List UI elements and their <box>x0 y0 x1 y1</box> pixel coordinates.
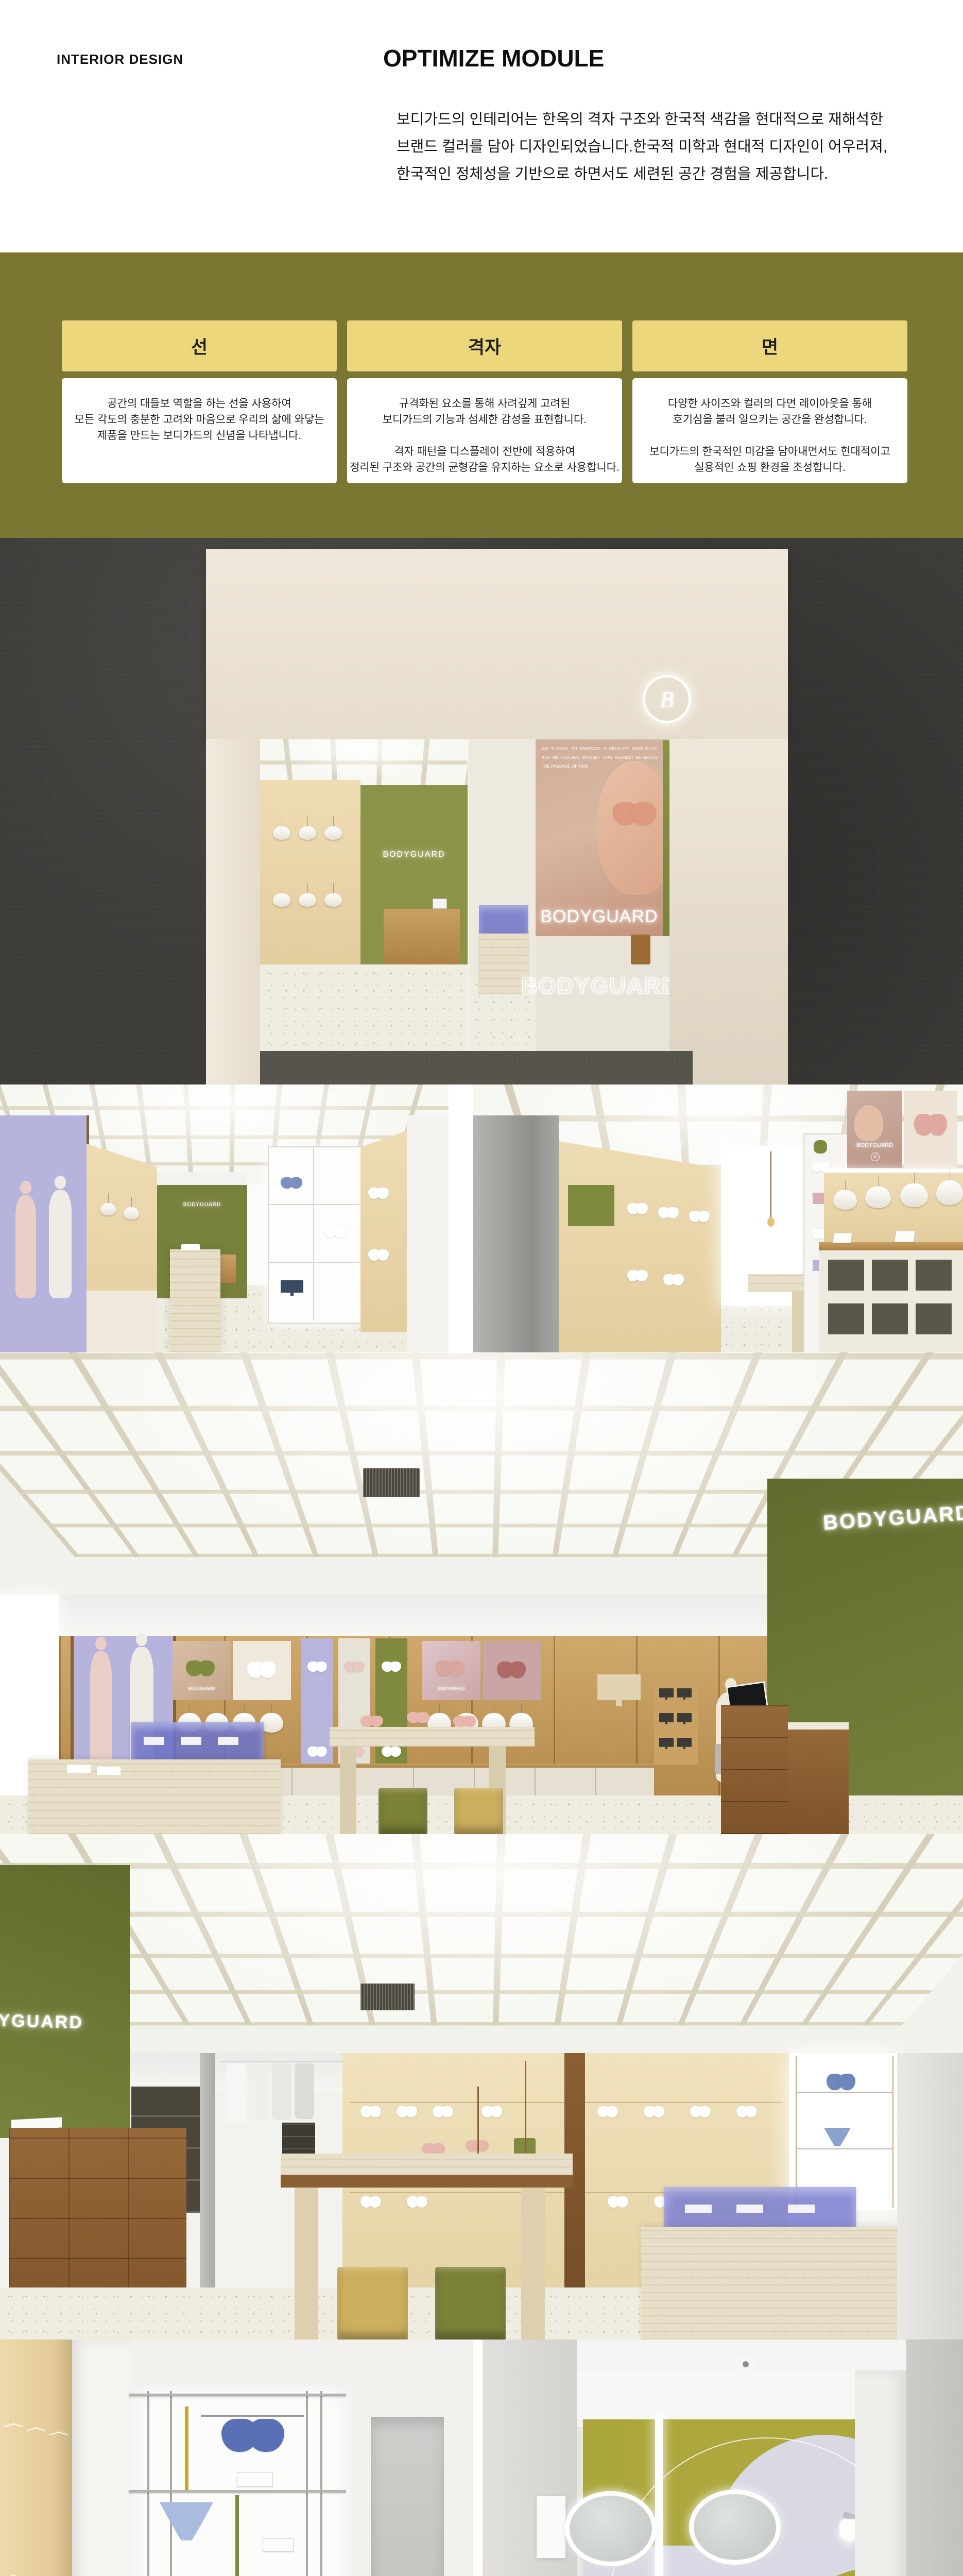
bra-icon <box>597 2106 618 2117</box>
hang-bar <box>201 2415 304 2417</box>
bra-icon <box>307 1747 327 1757</box>
cash-counter <box>721 1705 788 1834</box>
hanger-icon <box>4 2572 23 2576</box>
page-title: OPTIMIZE MODULE <box>383 44 604 72</box>
case-item <box>181 1737 201 1745</box>
wall-panel <box>537 2496 565 2558</box>
bust-icon <box>324 893 342 907</box>
cash-counter-low <box>788 1730 849 1834</box>
case-item <box>685 2205 712 2213</box>
travertine-island <box>641 2227 900 2340</box>
poster-caption: WE PLEDGE TO EMBRACE A DELICATE SENSIBIL… <box>542 744 657 771</box>
poster-wordmark: BODYGUARD <box>847 1142 902 1148</box>
design-principles-banner: 선 공간의 대들보 역할을 하는 선을 사용하여 모든 각도의 충분한 고려와 … <box>0 252 963 538</box>
glass-shelf <box>796 2148 893 2149</box>
frame-post <box>147 2391 149 2576</box>
olive-feature-wall: BODYGUARD <box>0 1865 130 2138</box>
bra-icon <box>324 1226 346 1238</box>
intro-paragraph-line: 브랜드 컬러를 담아 디자인되었습니다.한국적 미학과 현대적 디자인이 어우러… <box>397 133 887 161</box>
page-kicker: INTERIOR DESIGN <box>57 52 183 67</box>
bra-icon <box>186 1660 215 1676</box>
ceiling-light-wash <box>0 1834 963 2053</box>
boxer-icon <box>659 1713 674 1724</box>
counter-ledge <box>819 1242 963 1250</box>
travertine-island <box>28 1759 281 1834</box>
bra-icon <box>436 1660 465 1676</box>
hanging-tee <box>227 2063 246 2123</box>
poster-model-figure <box>854 1105 883 1141</box>
counter-slab <box>788 1722 849 1730</box>
boxer-icon <box>677 1713 692 1724</box>
facade-left-pillar <box>206 739 260 1084</box>
table-leg <box>340 1747 356 1834</box>
bra-icon <box>613 802 656 825</box>
bra-icon <box>382 1662 401 1672</box>
glass-door-wordmark: BODYGUARD <box>507 973 693 999</box>
blue-display-case <box>131 1722 264 1762</box>
plant-icon <box>814 1140 827 1154</box>
poster-wordmark: BODYGUARD <box>536 907 663 927</box>
principle-card-plane: 면 다양한 사이즈와 컬러의 다면 레이아웃을 통해 호기심을 불러 일으키는 … <box>632 252 907 538</box>
bust-icon <box>124 1207 139 1219</box>
rack-rail <box>221 2061 342 2062</box>
table-leg <box>295 2188 318 2340</box>
table-lamp-rod <box>477 2087 479 2154</box>
hall-render-reverse: BODYGUARD <box>0 1834 963 2340</box>
glass-shelf <box>796 2092 893 2093</box>
end-wall-brand-sign: BODYGUARD <box>157 1202 247 1208</box>
price-card <box>263 2538 294 2552</box>
desk-screen <box>433 899 447 909</box>
principle-card-title: 격자 <box>347 320 622 371</box>
hanging-tee <box>295 2063 314 2119</box>
bra-icon <box>689 1211 710 1222</box>
door-handle <box>631 935 650 964</box>
price-card <box>833 1233 853 1243</box>
principle-card-body: 공간의 대들보 역할을 하는 선을 사용하여 모든 각도의 충분한 고려와 마음… <box>62 378 337 483</box>
plinth-display-item <box>181 1244 200 1250</box>
principle-card-title: 면 <box>632 320 907 371</box>
bust-icon <box>273 893 290 907</box>
stool-olive <box>435 2267 506 2340</box>
boxer-icon <box>659 1738 674 1749</box>
shelf-line <box>269 1262 359 1263</box>
hall-ceiling <box>0 1834 963 2053</box>
price-card <box>237 2472 273 2487</box>
wall-brand-sign: BODYGUARD <box>0 2010 130 2035</box>
spotlight-icon <box>743 2361 749 2367</box>
principle-card-grid: 격자 규격화된 요소를 통해 사려깊게 고려된 보디가드의 기능과 섬세한 감성… <box>347 252 622 538</box>
portfolio-page: INTERIOR DESIGN OPTIMIZE MODULE 보디가드의 인테… <box>0 0 963 2576</box>
brand-ring-logo-icon: B <box>643 675 691 723</box>
poster-wordmark: BODYGUARD <box>173 1686 231 1691</box>
bust-icon <box>865 1187 891 1208</box>
bra-icon <box>914 1114 947 1136</box>
hanging-tee <box>272 2063 291 2120</box>
table-apron <box>281 2175 573 2188</box>
principle-card-title: 선 <box>62 320 337 371</box>
hanger-icon <box>49 2429 68 2437</box>
stool-olive <box>379 1788 427 1834</box>
folded-garment <box>67 1765 91 1773</box>
bra-icon <box>690 2106 711 2117</box>
bra-icon <box>644 2106 664 2117</box>
bra-icon <box>247 1662 276 1678</box>
bra-icon <box>422 2143 445 2155</box>
service-niche <box>371 2417 444 2576</box>
blue-display-case <box>479 905 528 934</box>
bra-icon <box>407 2196 427 2208</box>
wall-poster <box>483 1641 541 1700</box>
briefs-rack <box>654 1682 698 1765</box>
right-wall <box>897 2053 963 2340</box>
round-mirror <box>565 2491 657 2566</box>
aisle-render-left: BODYGUARD <box>0 1084 449 1352</box>
table-leg <box>521 2188 545 2340</box>
hanging-tee <box>249 2063 269 2121</box>
bra-icon <box>827 2074 855 2090</box>
table-top <box>281 2154 573 2175</box>
frame-post <box>320 2391 322 2576</box>
bra-icon <box>433 2106 453 2117</box>
bust-icon <box>324 826 342 840</box>
bust-icon <box>936 1180 963 1205</box>
wall-poster-product <box>904 1091 957 1168</box>
case-item <box>788 2205 815 2213</box>
price-card <box>894 1231 915 1242</box>
wood-display-wall <box>559 1141 721 1352</box>
shelf <box>129 2490 346 2493</box>
mirror-wall <box>473 1115 559 1352</box>
blue-lace-bra-icon <box>221 2419 284 2452</box>
stone-plinth <box>170 1249 220 1352</box>
outer-right-wall <box>906 2340 963 2576</box>
bra-icon <box>397 2106 417 2117</box>
wall-pillar <box>72 2340 130 2576</box>
wall-poster: BODYGUARD <box>422 1641 480 1700</box>
case-item <box>218 1737 238 1745</box>
front-pilaster <box>407 1115 449 1352</box>
wall-poster <box>233 1641 291 1700</box>
wall-poster-model: BODYGUARD B <box>847 1091 902 1168</box>
bra-icon <box>382 1747 401 1757</box>
bra-icon <box>627 1203 648 1214</box>
case-item <box>736 2205 763 2213</box>
bra-icon <box>663 1274 684 1285</box>
badge-ring-icon: B <box>871 1153 880 1161</box>
glass-frame <box>796 2056 797 2208</box>
cash-desk <box>384 909 460 965</box>
interior-display-wall <box>260 780 360 971</box>
cubby <box>872 1303 908 1334</box>
bust-icon <box>100 1203 116 1215</box>
shelf <box>129 2394 346 2396</box>
principle-card-line: 선 공간의 대들보 역할을 하는 선을 사용하여 모든 각도의 충분한 고려와 … <box>62 252 337 538</box>
hall-render: BODYGUARD BODYGUARD <box>0 1352 963 1834</box>
glass-seam <box>468 739 469 1054</box>
storefront-render: B BODYGUARD WE PL <box>0 538 963 1084</box>
bra-icon <box>368 1249 389 1261</box>
bra-icon <box>368 1188 389 1199</box>
shelf-line <box>269 1204 359 1205</box>
glass-frame <box>892 2056 893 2208</box>
intro-paragraph-line: 한국적인 정체성을 기반으로 하면서도 세련된 공간 경험을 제공합니다. <box>397 161 887 188</box>
intro-section: INTERIOR DESIGN OPTIMIZE MODULE 보디가드의 인테… <box>0 0 963 252</box>
end-wall-header <box>157 1172 247 1185</box>
inner-right-wall <box>855 2370 906 2576</box>
accent-rod-mustard <box>185 2406 188 2490</box>
bra-icon <box>608 2196 628 2208</box>
bra-icon <box>658 1207 679 1218</box>
blue-display-case <box>664 2187 856 2231</box>
powder-room-render <box>483 2340 963 2576</box>
stool-mustard <box>454 1788 503 1834</box>
cubby <box>828 1303 864 1334</box>
bra-icon <box>482 2106 502 2117</box>
stool-mustard <box>337 2267 408 2340</box>
cubby <box>828 1260 864 1291</box>
cubby <box>916 1260 952 1291</box>
hanger-icon <box>27 2425 45 2433</box>
bust-icon <box>833 1190 857 1210</box>
lavender-display-wall <box>0 1115 89 1352</box>
brand-monogram: B <box>660 686 674 713</box>
hanger-icon <box>4 2421 23 2429</box>
frame-post <box>170 2391 172 2576</box>
table-top <box>330 1727 535 1747</box>
interior-floor <box>260 964 468 1052</box>
upper-wall <box>577 2370 855 2419</box>
bra-icon <box>736 2106 757 2117</box>
base-cabinet <box>87 1291 157 1352</box>
frame-post <box>306 2391 308 2576</box>
cubby <box>916 1303 952 1334</box>
lit-shelf-rail <box>824 1168 963 1173</box>
facade-right-wall <box>669 739 788 1084</box>
intro-paragraph: 보디가드의 인테리어는 한옥의 격자 구조와 한국적 색감을 현대적으로 재해석… <box>397 106 887 188</box>
bra-icon <box>627 1270 648 1281</box>
pendant-lamp <box>767 1217 775 1227</box>
pendant-rod <box>770 1151 771 1218</box>
folded-garment <box>97 1767 121 1775</box>
display-niche-render <box>0 2340 473 2576</box>
intro-paragraph-line: 보디가드의 인테리어는 한옥의 격자 구조와 한국적 색감을 현대적으로 재해석… <box>397 106 887 133</box>
lit-divider-edge <box>655 2415 663 2576</box>
accent-rod-olive <box>235 2495 239 2576</box>
boxer-icon <box>677 1688 692 1700</box>
bra-icon <box>307 1662 327 1672</box>
ceiling-vent <box>360 1984 415 2010</box>
brand-monogram: B <box>874 1155 876 1159</box>
bust-icon <box>299 893 316 907</box>
principle-card-body: 규격화된 요소를 통해 사려깊게 고려된 보디가드의 기능과 섬세한 감성을 표… <box>347 378 622 483</box>
aisle-render-right: BODYGUARD B <box>473 1084 963 1352</box>
bra-icon <box>345 1662 364 1672</box>
mannequin <box>15 1195 36 1298</box>
bra-icon <box>360 1716 383 1727</box>
interior-brand-sign: BODYGUARD <box>360 850 468 859</box>
cubby <box>872 1260 908 1291</box>
bust-icon <box>299 826 316 840</box>
bra-icon <box>407 1712 429 1723</box>
poster-model-figure <box>596 761 663 895</box>
mannequin <box>49 1190 72 1298</box>
stone-threshold <box>260 1051 693 1084</box>
side-wood-panel <box>0 2340 72 2576</box>
wood-display-wall <box>360 1131 407 1332</box>
ceiling-vent <box>363 1468 420 1497</box>
bust-icon <box>900 1183 928 1207</box>
principle-card-body: 다양한 사이즈와 컬러의 다면 레이아웃을 통해 호기심을 불러 일으키는 공간… <box>632 378 907 483</box>
bra-icon <box>281 1177 302 1189</box>
bra-icon <box>360 2196 381 2208</box>
wall-poster: BODYGUARD <box>173 1641 231 1700</box>
bra-icon <box>360 2106 381 2117</box>
green-info-card <box>568 1185 614 1226</box>
shelf-divider <box>313 1147 314 1320</box>
bra-icon <box>453 1716 476 1727</box>
boxer-icon <box>659 1688 674 1700</box>
bra-icon <box>497 1662 526 1678</box>
boxer-icon <box>677 1738 692 1749</box>
case-item <box>144 1737 164 1745</box>
glass-shelf-panel <box>268 1146 363 1324</box>
round-mirror <box>689 2489 781 2565</box>
upper-wall-band <box>0 1595 767 1636</box>
poster-wordmark: BODYGUARD <box>422 1686 480 1691</box>
facade-header-panel <box>206 549 788 739</box>
bust-icon <box>273 826 290 840</box>
